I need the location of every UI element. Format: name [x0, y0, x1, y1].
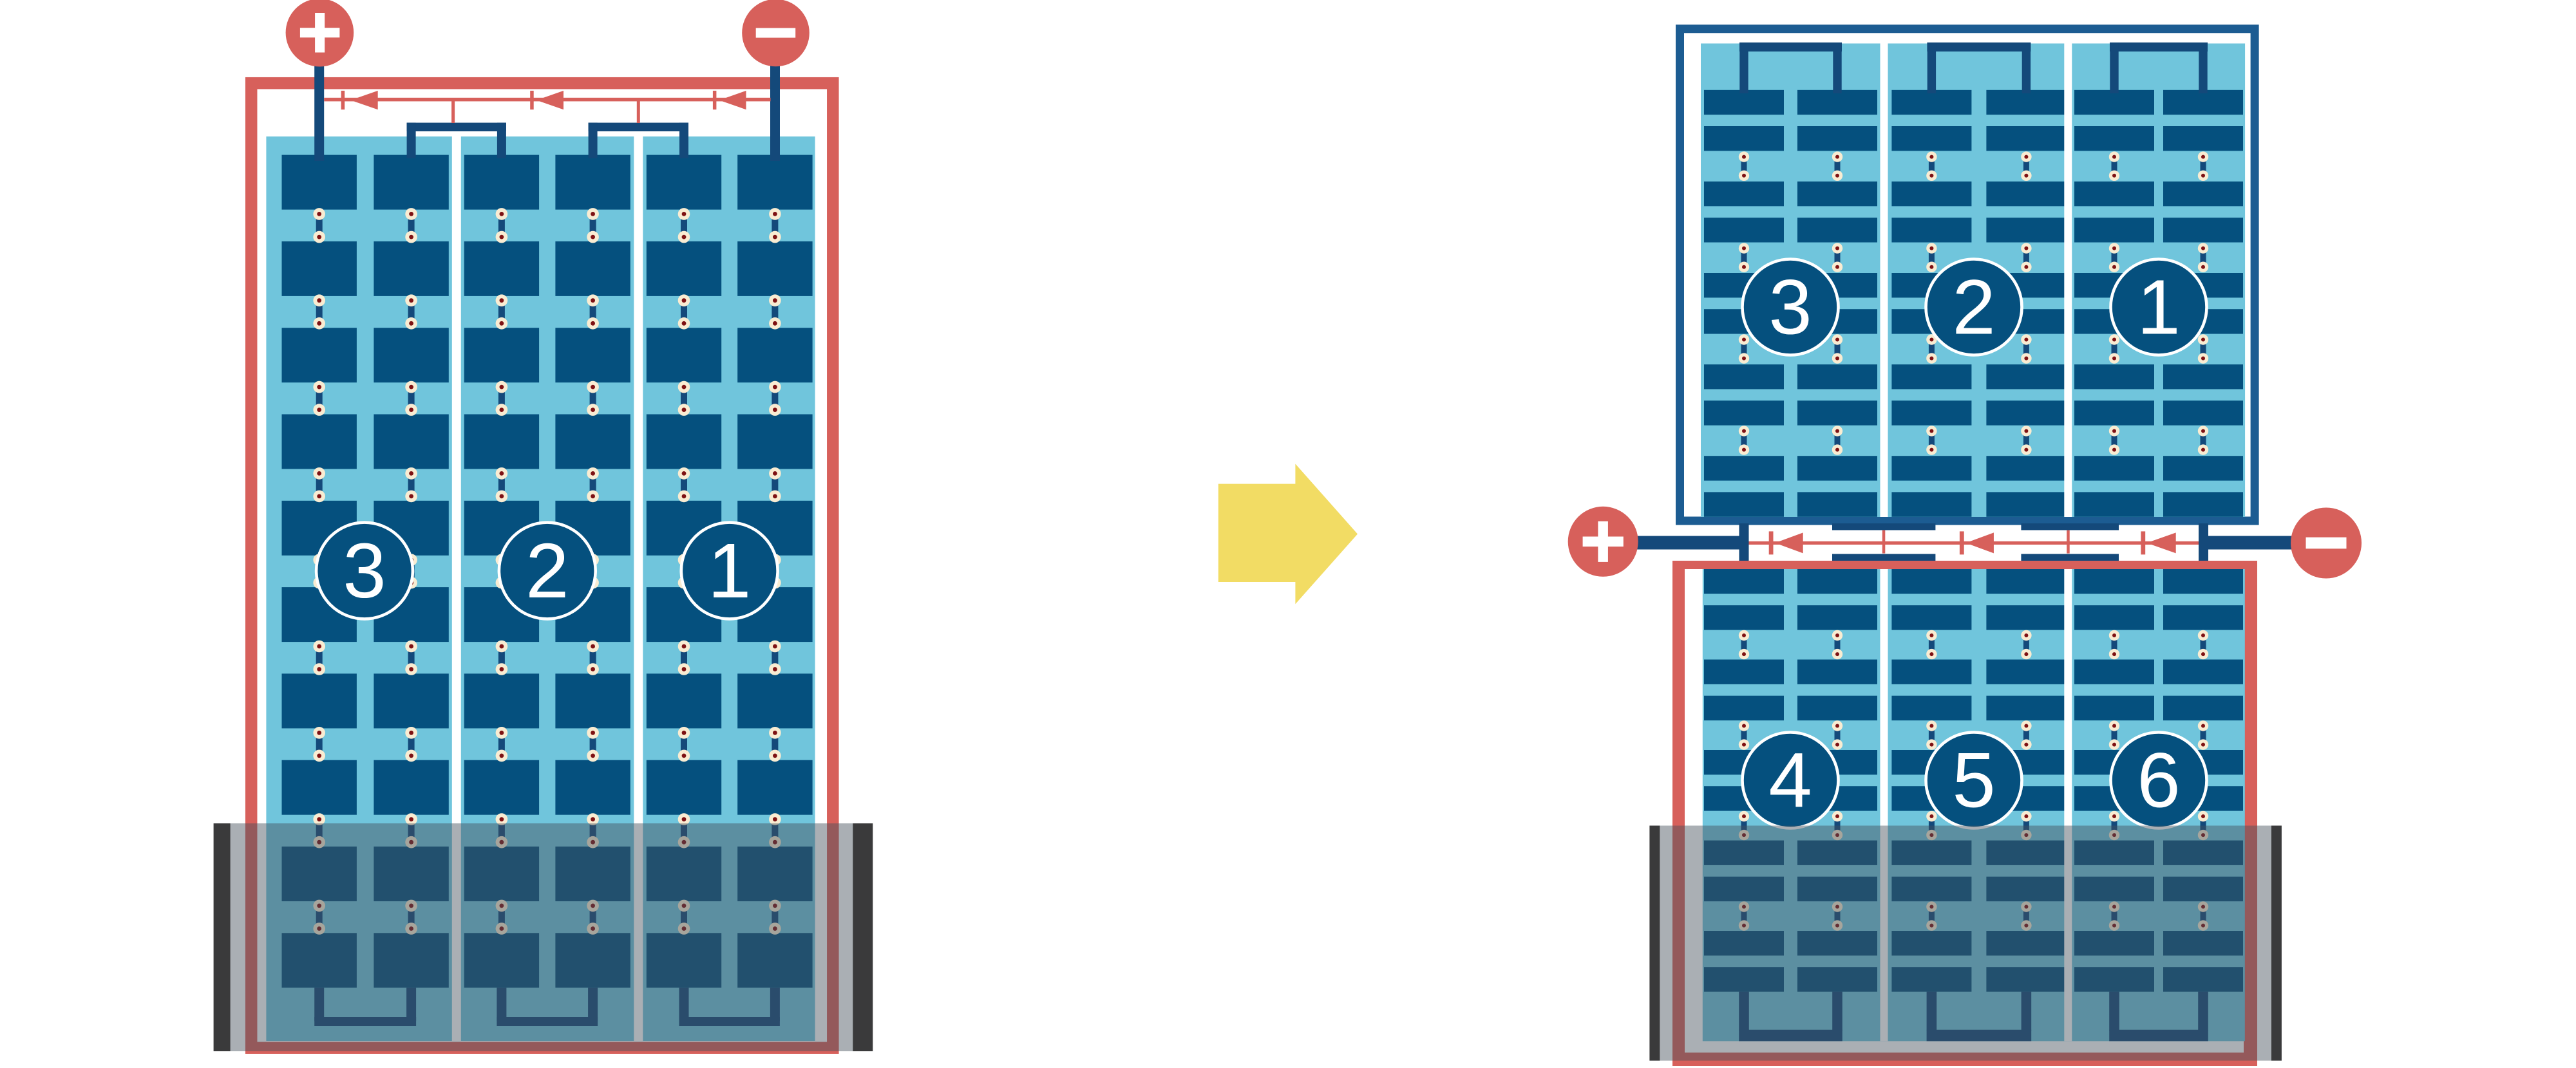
svg-text:2: 2: [1952, 263, 1995, 351]
svg-text:2: 2: [526, 527, 569, 614]
svg-text:5: 5: [1952, 736, 1995, 824]
svg-text:1: 1: [708, 527, 751, 614]
svg-text:3: 3: [343, 527, 386, 614]
svg-text:1: 1: [2137, 263, 2180, 351]
svg-text:6: 6: [2137, 736, 2180, 824]
svg-text:4: 4: [1768, 736, 1812, 824]
svg-text:3: 3: [1768, 263, 1812, 351]
